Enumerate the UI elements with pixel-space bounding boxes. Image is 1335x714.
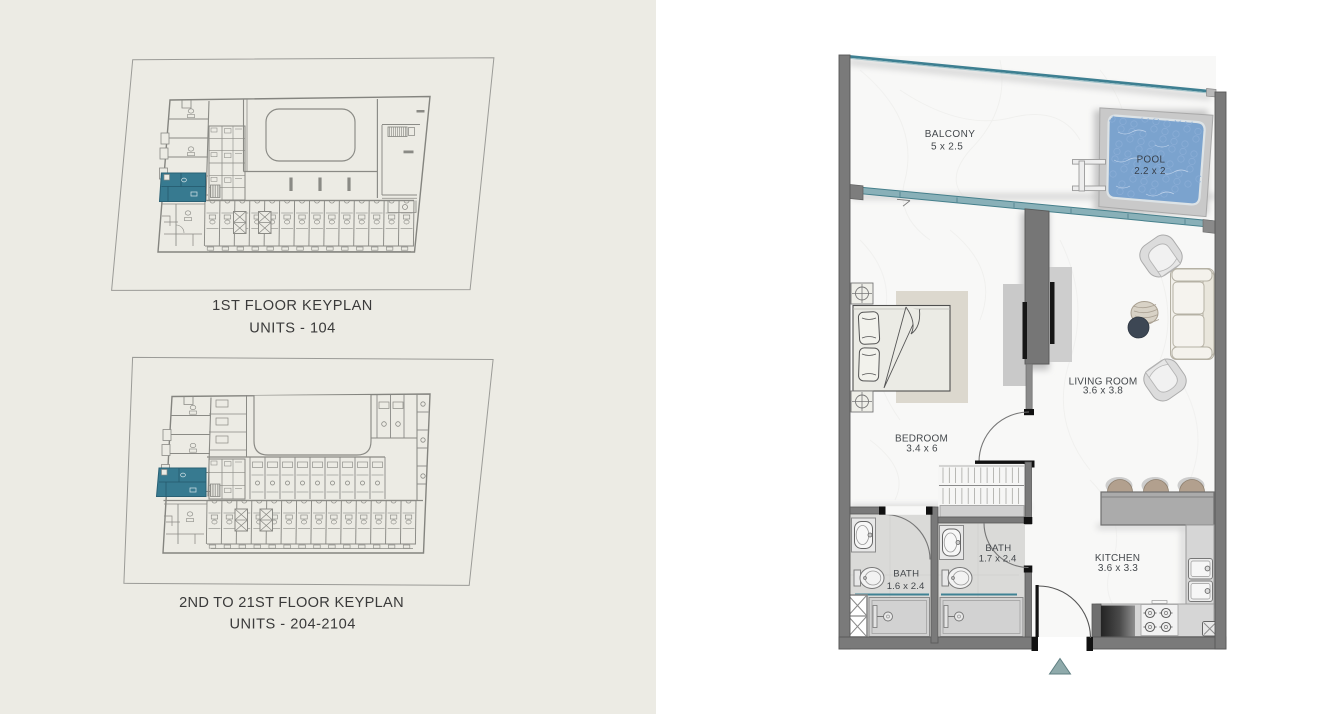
- svg-text:BATH: BATH: [985, 543, 1011, 554]
- svg-text:3.6 x 3.8: 3.6 x 3.8: [1083, 386, 1123, 397]
- svg-text:5 x 2.5: 5 x 2.5: [931, 142, 963, 153]
- svg-text:1ST FLOOR KEYPLAN: 1ST FLOOR KEYPLAN: [212, 298, 373, 314]
- svg-text:BATH: BATH: [893, 569, 919, 580]
- svg-text:2ND TO 21ST FLOOR KEYPLAN: 2ND TO 21ST FLOOR KEYPLAN: [179, 595, 404, 611]
- svg-text:1.6 x 2.4: 1.6 x 2.4: [887, 581, 925, 592]
- svg-text:3.6 x 3.3: 3.6 x 3.3: [1098, 563, 1138, 574]
- svg-text:UNITS - 104: UNITS - 104: [249, 321, 336, 337]
- svg-text:3.4 x 6: 3.4 x 6: [906, 443, 938, 454]
- svg-text:UNITS - 204-2104: UNITS - 204-2104: [229, 616, 355, 632]
- svg-text:1.7 x 2.4: 1.7 x 2.4: [979, 554, 1017, 565]
- svg-text:POOL: POOL: [1137, 155, 1166, 166]
- svg-text:BALCONY: BALCONY: [925, 129, 976, 140]
- svg-text:2.2 x 2: 2.2 x 2: [1134, 166, 1166, 177]
